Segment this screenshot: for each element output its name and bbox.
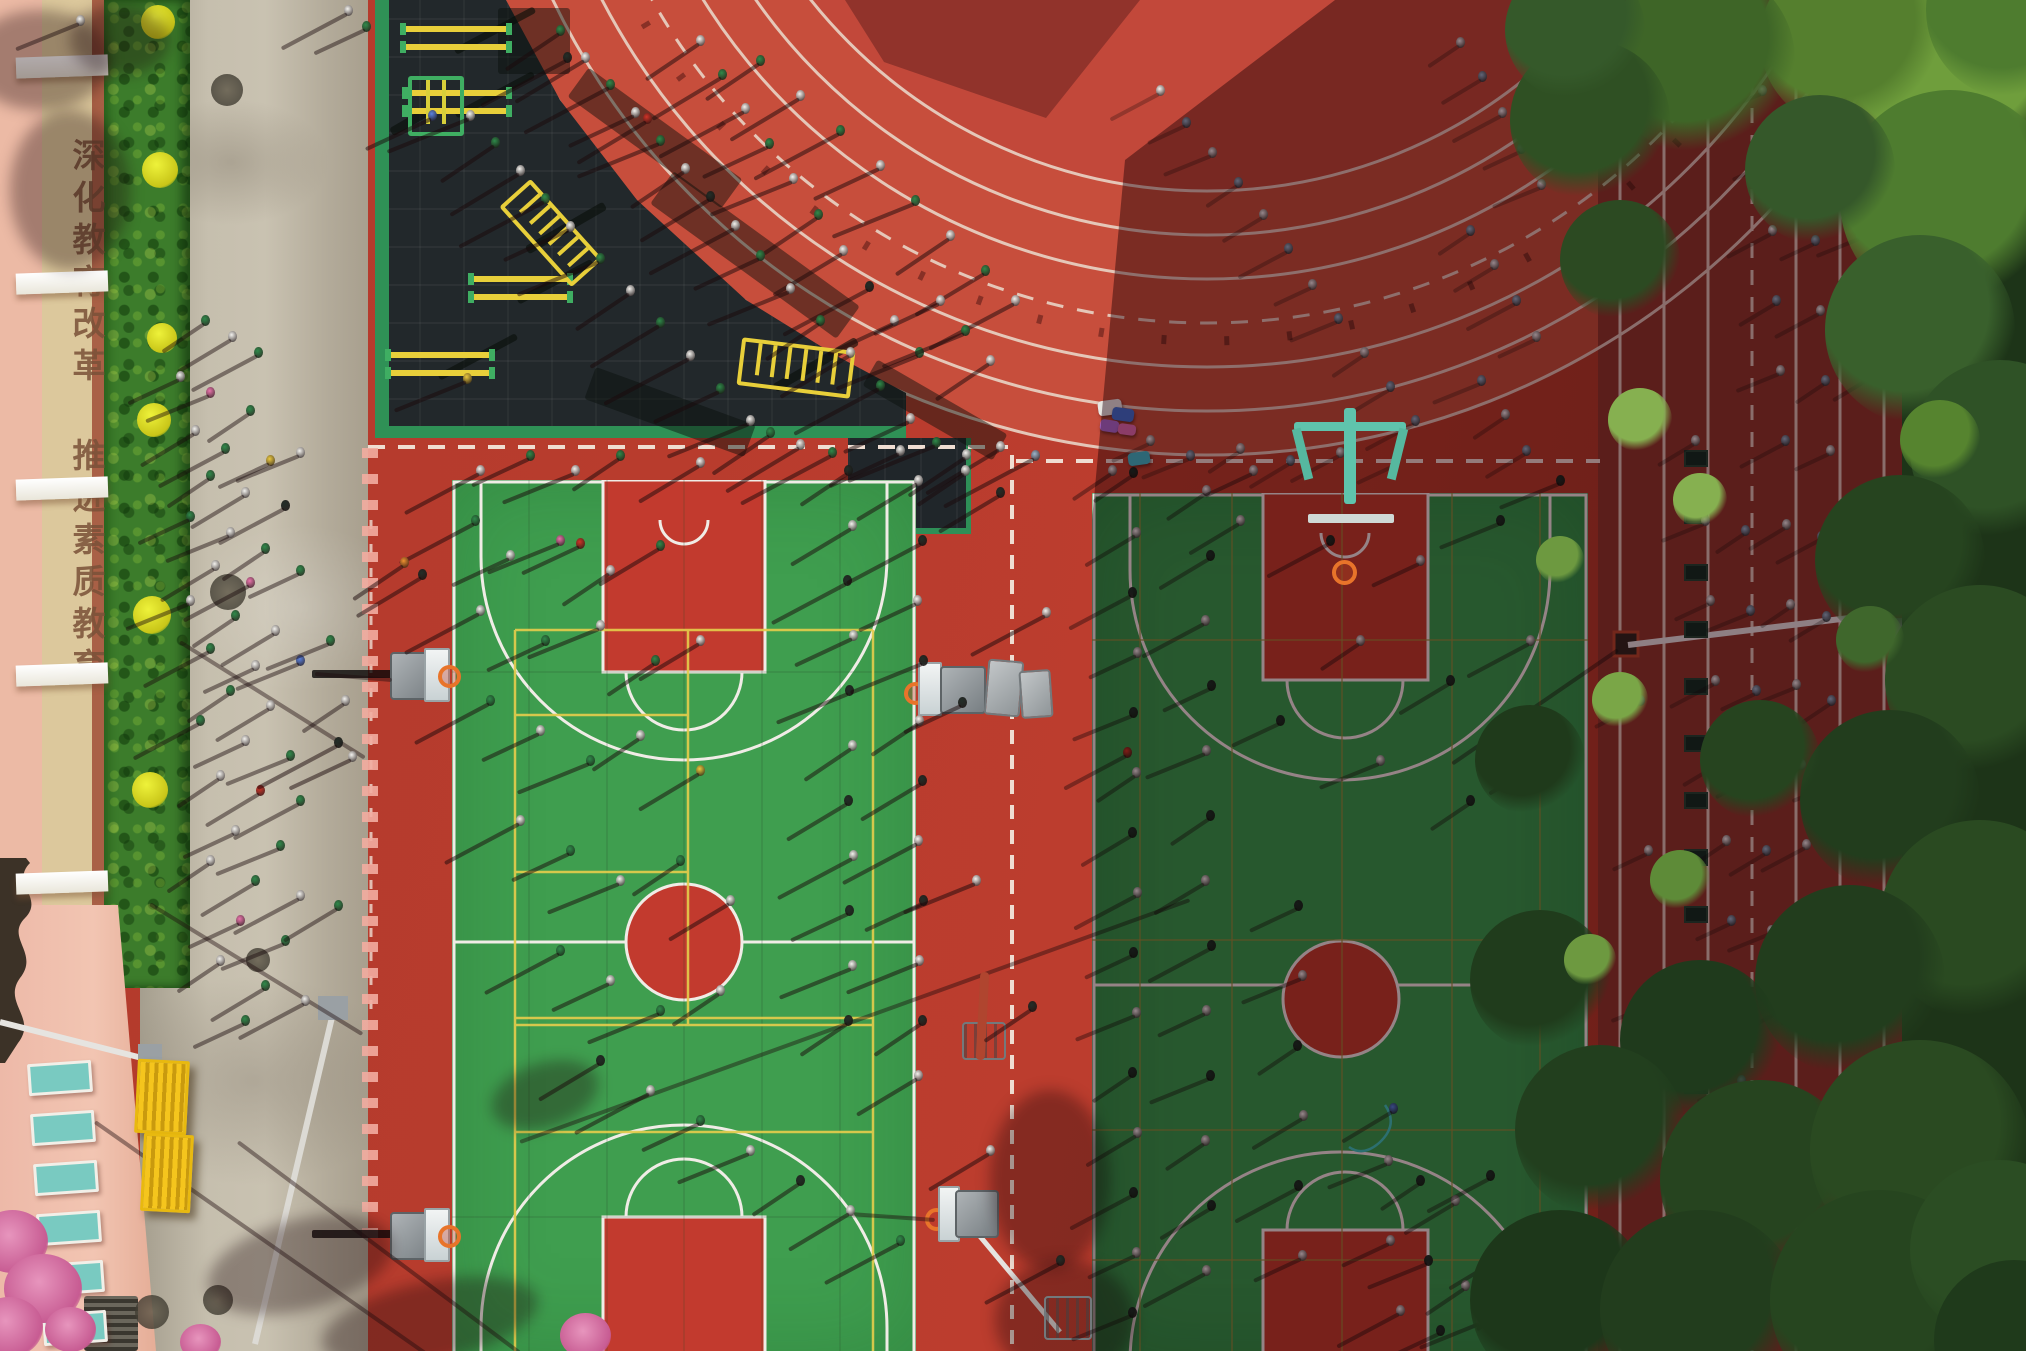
person [626,285,635,296]
person [696,1115,705,1126]
person [846,347,855,358]
person [566,221,575,232]
bougainvillea [180,1324,221,1351]
person [362,21,371,32]
person [796,90,805,101]
person-shadow [561,572,610,607]
person-shadow [165,534,230,563]
person-shadow [846,542,922,585]
person-shadow [903,704,962,734]
person [786,283,795,294]
bar-post-green [506,23,512,35]
person [845,905,854,916]
soft-shadow [70,5,170,75]
person [646,1085,655,1096]
person-shadow [265,642,330,671]
person [913,595,922,606]
person [796,439,805,450]
person [196,715,205,726]
person-shadow [668,902,730,941]
ladder-rung [442,80,446,124]
person [348,751,357,762]
person-shadow [794,637,853,667]
bar-post-green [468,291,474,303]
person-shadow [591,737,640,772]
person-shadow [210,987,265,1022]
person-shadow [873,302,940,336]
person-shadow [776,692,849,725]
person [276,840,285,851]
fitness-double-bar [400,26,512,52]
walkway-beam [16,476,109,500]
person [914,1070,923,1081]
person [796,1175,805,1186]
person [836,125,845,136]
person-shadow [638,464,700,503]
person [918,775,927,786]
person-shadow [850,662,923,695]
person-shadow [938,494,1000,533]
person [896,1235,905,1246]
person [986,355,995,366]
person [76,15,85,26]
person [261,543,270,554]
person-shadow [1109,92,1160,121]
person-shadow [786,802,848,841]
person [486,695,495,706]
person [756,55,765,66]
person [1011,295,1020,306]
person [814,209,823,220]
person-shadow [842,842,918,885]
person [716,985,725,996]
person [972,875,981,886]
person-shadow [167,862,210,893]
bougainvillea [45,1307,96,1351]
person [1156,85,1165,96]
person [696,635,705,646]
bar-post-green [400,41,406,53]
person [296,795,305,806]
person [844,1015,853,1026]
person-shadow [207,412,250,443]
person [226,685,235,696]
person [865,281,874,292]
person-shadow [788,1212,850,1251]
bar-yellow [400,26,512,32]
person [848,740,857,751]
person-shadow [484,952,560,995]
person-shadow [824,1242,900,1285]
ladder-rung [800,349,808,381]
person-shadow [970,614,1046,657]
person-shadow [606,662,655,697]
person [656,135,665,146]
person [476,605,485,616]
cast-shadow-line [315,672,392,682]
bar-post-green [506,41,512,53]
person [936,295,945,306]
person-shadow [440,144,495,183]
person [906,413,915,424]
bougainvillea [560,1313,611,1351]
person [915,955,924,966]
person [296,890,305,901]
hedge-flower [142,152,178,188]
person [271,625,280,636]
person [946,230,955,241]
ladder-rung [755,343,763,375]
person [206,855,215,866]
person-shadow [283,907,338,942]
person-shadow [394,380,467,413]
person [326,635,335,646]
person [516,815,525,826]
person-shadow [404,472,480,515]
person [301,995,310,1006]
person-shadow [220,632,275,667]
person [241,487,250,498]
person [1042,607,1051,618]
person-shadow [190,494,245,529]
person [1028,1001,1037,1012]
person [914,475,923,486]
person-shadow [571,457,620,492]
person [566,845,575,856]
person [266,700,275,711]
person [918,535,927,546]
person-shadow [638,772,700,811]
person [731,220,740,231]
mat-shadow [568,68,743,209]
person-shadow [651,76,722,121]
bar-yellow [400,44,512,50]
person [686,350,695,361]
person [241,1015,250,1026]
person [696,457,705,468]
person [606,975,615,986]
person-shadow [451,557,510,587]
person [996,441,1005,452]
person [844,795,853,806]
person-shadow [860,782,922,821]
person-shadow [856,1077,918,1116]
person-shadow [128,378,180,405]
person-shadow [225,757,290,786]
person [681,163,690,174]
person [191,425,200,436]
person-shadow [352,564,404,601]
person-shadow [799,472,848,507]
person-shadow [215,847,280,876]
person [466,110,475,121]
person-shadow [729,97,800,142]
person-shadow [577,142,660,179]
person [226,527,235,538]
person [556,25,565,36]
person-shadow [740,454,832,505]
person [281,500,290,511]
person [556,945,565,956]
bar-post-green [400,23,406,35]
walkway-beam [16,662,109,686]
person [896,445,905,456]
person [536,725,545,736]
person [932,437,941,448]
person [586,755,595,766]
person [656,1005,665,1016]
person [746,415,755,426]
person [986,1145,995,1156]
person-shadow [589,324,660,369]
manhole-cover [211,74,243,106]
bar-post-green [567,291,573,303]
person [839,245,848,256]
person [581,52,590,63]
person [541,635,550,646]
person [576,538,585,549]
soft-shadow [10,110,130,270]
person-shadow [521,545,580,575]
person [186,511,195,522]
person [516,165,525,176]
person-shadow [200,882,255,917]
person [221,443,230,454]
person-shadow [645,42,700,81]
person [706,191,715,202]
person-shadow [177,777,220,808]
bar-post-green [489,367,495,379]
bar-post-green [385,367,391,379]
person [556,535,565,546]
bar-post-green [468,273,474,285]
person [186,595,195,606]
person [919,655,928,666]
person-shadow [138,518,190,545]
person-shadow [638,642,700,681]
person [981,265,990,276]
person-shadow [248,572,300,599]
building-window [27,1060,93,1096]
person [726,895,735,906]
person [656,317,665,328]
person-shadow [575,292,630,331]
person [563,52,572,63]
person-shadow [882,332,965,369]
person [254,347,263,358]
person [596,620,605,631]
person [876,380,885,391]
fitness-double-bar [385,352,495,378]
person [491,137,500,148]
person-shadow [551,982,610,1012]
person [344,5,353,16]
person [849,630,858,641]
person [596,1055,605,1066]
hedge-flower [132,772,168,808]
person-shadow [763,216,818,255]
person [696,35,705,46]
person-shadow [205,792,260,827]
bar-yellow [385,352,495,358]
person [828,447,837,458]
person-shadow [751,1182,800,1217]
person [526,450,535,461]
person [631,107,640,118]
building-window [33,1160,99,1196]
person-shadow [444,822,520,865]
person [231,610,240,621]
person [846,1205,855,1216]
person-shadow [935,362,990,401]
person [961,465,970,476]
person-shadow [517,762,590,795]
person [463,373,472,384]
person [341,695,350,706]
person [251,875,260,886]
person [246,405,255,416]
person-shadow [707,290,790,327]
person [246,577,255,588]
person [716,383,725,394]
person-shadow [779,967,852,1000]
person [471,515,480,526]
person [756,250,765,261]
cast-shadow-line [850,1212,935,1222]
fitness-ladder [499,179,602,287]
person-shadow [777,857,853,900]
person [400,557,409,568]
person-shadow [631,862,680,897]
person [251,660,260,671]
person-shadow [771,582,847,625]
person-shadow [217,507,285,545]
person-shadow [486,642,545,672]
person [296,565,305,576]
yellow-barrier-stack [140,1133,194,1214]
person [844,465,853,476]
bar-post-green [385,349,391,361]
ladder-rung [557,236,579,256]
person [571,465,580,476]
building-window [30,1110,96,1146]
person [918,1015,927,1026]
basketball-stand-teal [1294,408,1414,588]
person [789,173,798,184]
person-shadow [790,912,849,942]
person [676,855,685,866]
bar-yellow [385,370,495,376]
person-shadow [873,1022,922,1057]
person [236,915,245,926]
person [816,315,825,326]
person-shadow [222,550,265,581]
person-shadow [177,338,232,373]
person [216,770,225,781]
person-shadow [677,1152,750,1185]
person [616,450,625,461]
person [849,850,858,861]
person [656,540,665,551]
person-shadow [813,167,880,201]
person-shadow [404,612,480,655]
person-shadow [314,28,366,55]
person-shadow [790,527,852,566]
person-shadow [547,882,620,915]
person [696,765,705,776]
person [848,960,857,971]
walkway-beam [16,270,109,294]
person [596,253,605,264]
person-shadow [187,692,230,723]
person-shadow [856,482,918,521]
person [996,487,1005,498]
person-shadow [132,722,200,760]
person [261,980,270,991]
person [962,449,971,460]
tree-canopy-backdrop [1902,0,2026,1351]
person [334,900,343,911]
person [476,465,485,476]
person [286,750,295,761]
person [616,875,625,886]
person [643,113,652,124]
person [228,331,237,342]
bar-post-green [489,349,495,361]
person-shadow [232,802,300,840]
ladder-rung [785,347,793,379]
person [428,110,437,121]
person-shadow [140,432,195,467]
person [914,835,923,846]
person-shadow [399,522,475,565]
person [206,643,215,654]
person [1031,450,1040,461]
person-shadow [280,12,348,50]
person [418,569,427,580]
person-shadow [356,576,422,618]
person-shadow [895,237,950,276]
person-shadow [832,202,915,239]
person [541,193,550,204]
person [718,69,727,80]
person-shadow [803,747,852,782]
person [876,160,885,171]
person [765,138,774,149]
person-shadow [167,477,210,508]
person [176,371,185,382]
person [848,520,857,531]
person [636,730,645,741]
bar-post-green [506,105,512,117]
person [334,737,343,748]
person-shadow [414,702,490,745]
person-shadow [177,962,220,993]
manhole-cover [135,1295,169,1329]
person [961,325,970,336]
person [206,387,215,398]
aerial-playground-photo: 深化教育改革 推进素质教育 [0,0,2026,1351]
person-shadow [903,882,976,915]
person [958,697,967,708]
person-shadow [671,992,720,1027]
person [201,315,210,326]
person-shadow [157,450,225,488]
person [216,955,225,966]
person-shadow [511,852,570,882]
person-shadow [193,742,245,769]
person-shadow [641,1122,700,1152]
